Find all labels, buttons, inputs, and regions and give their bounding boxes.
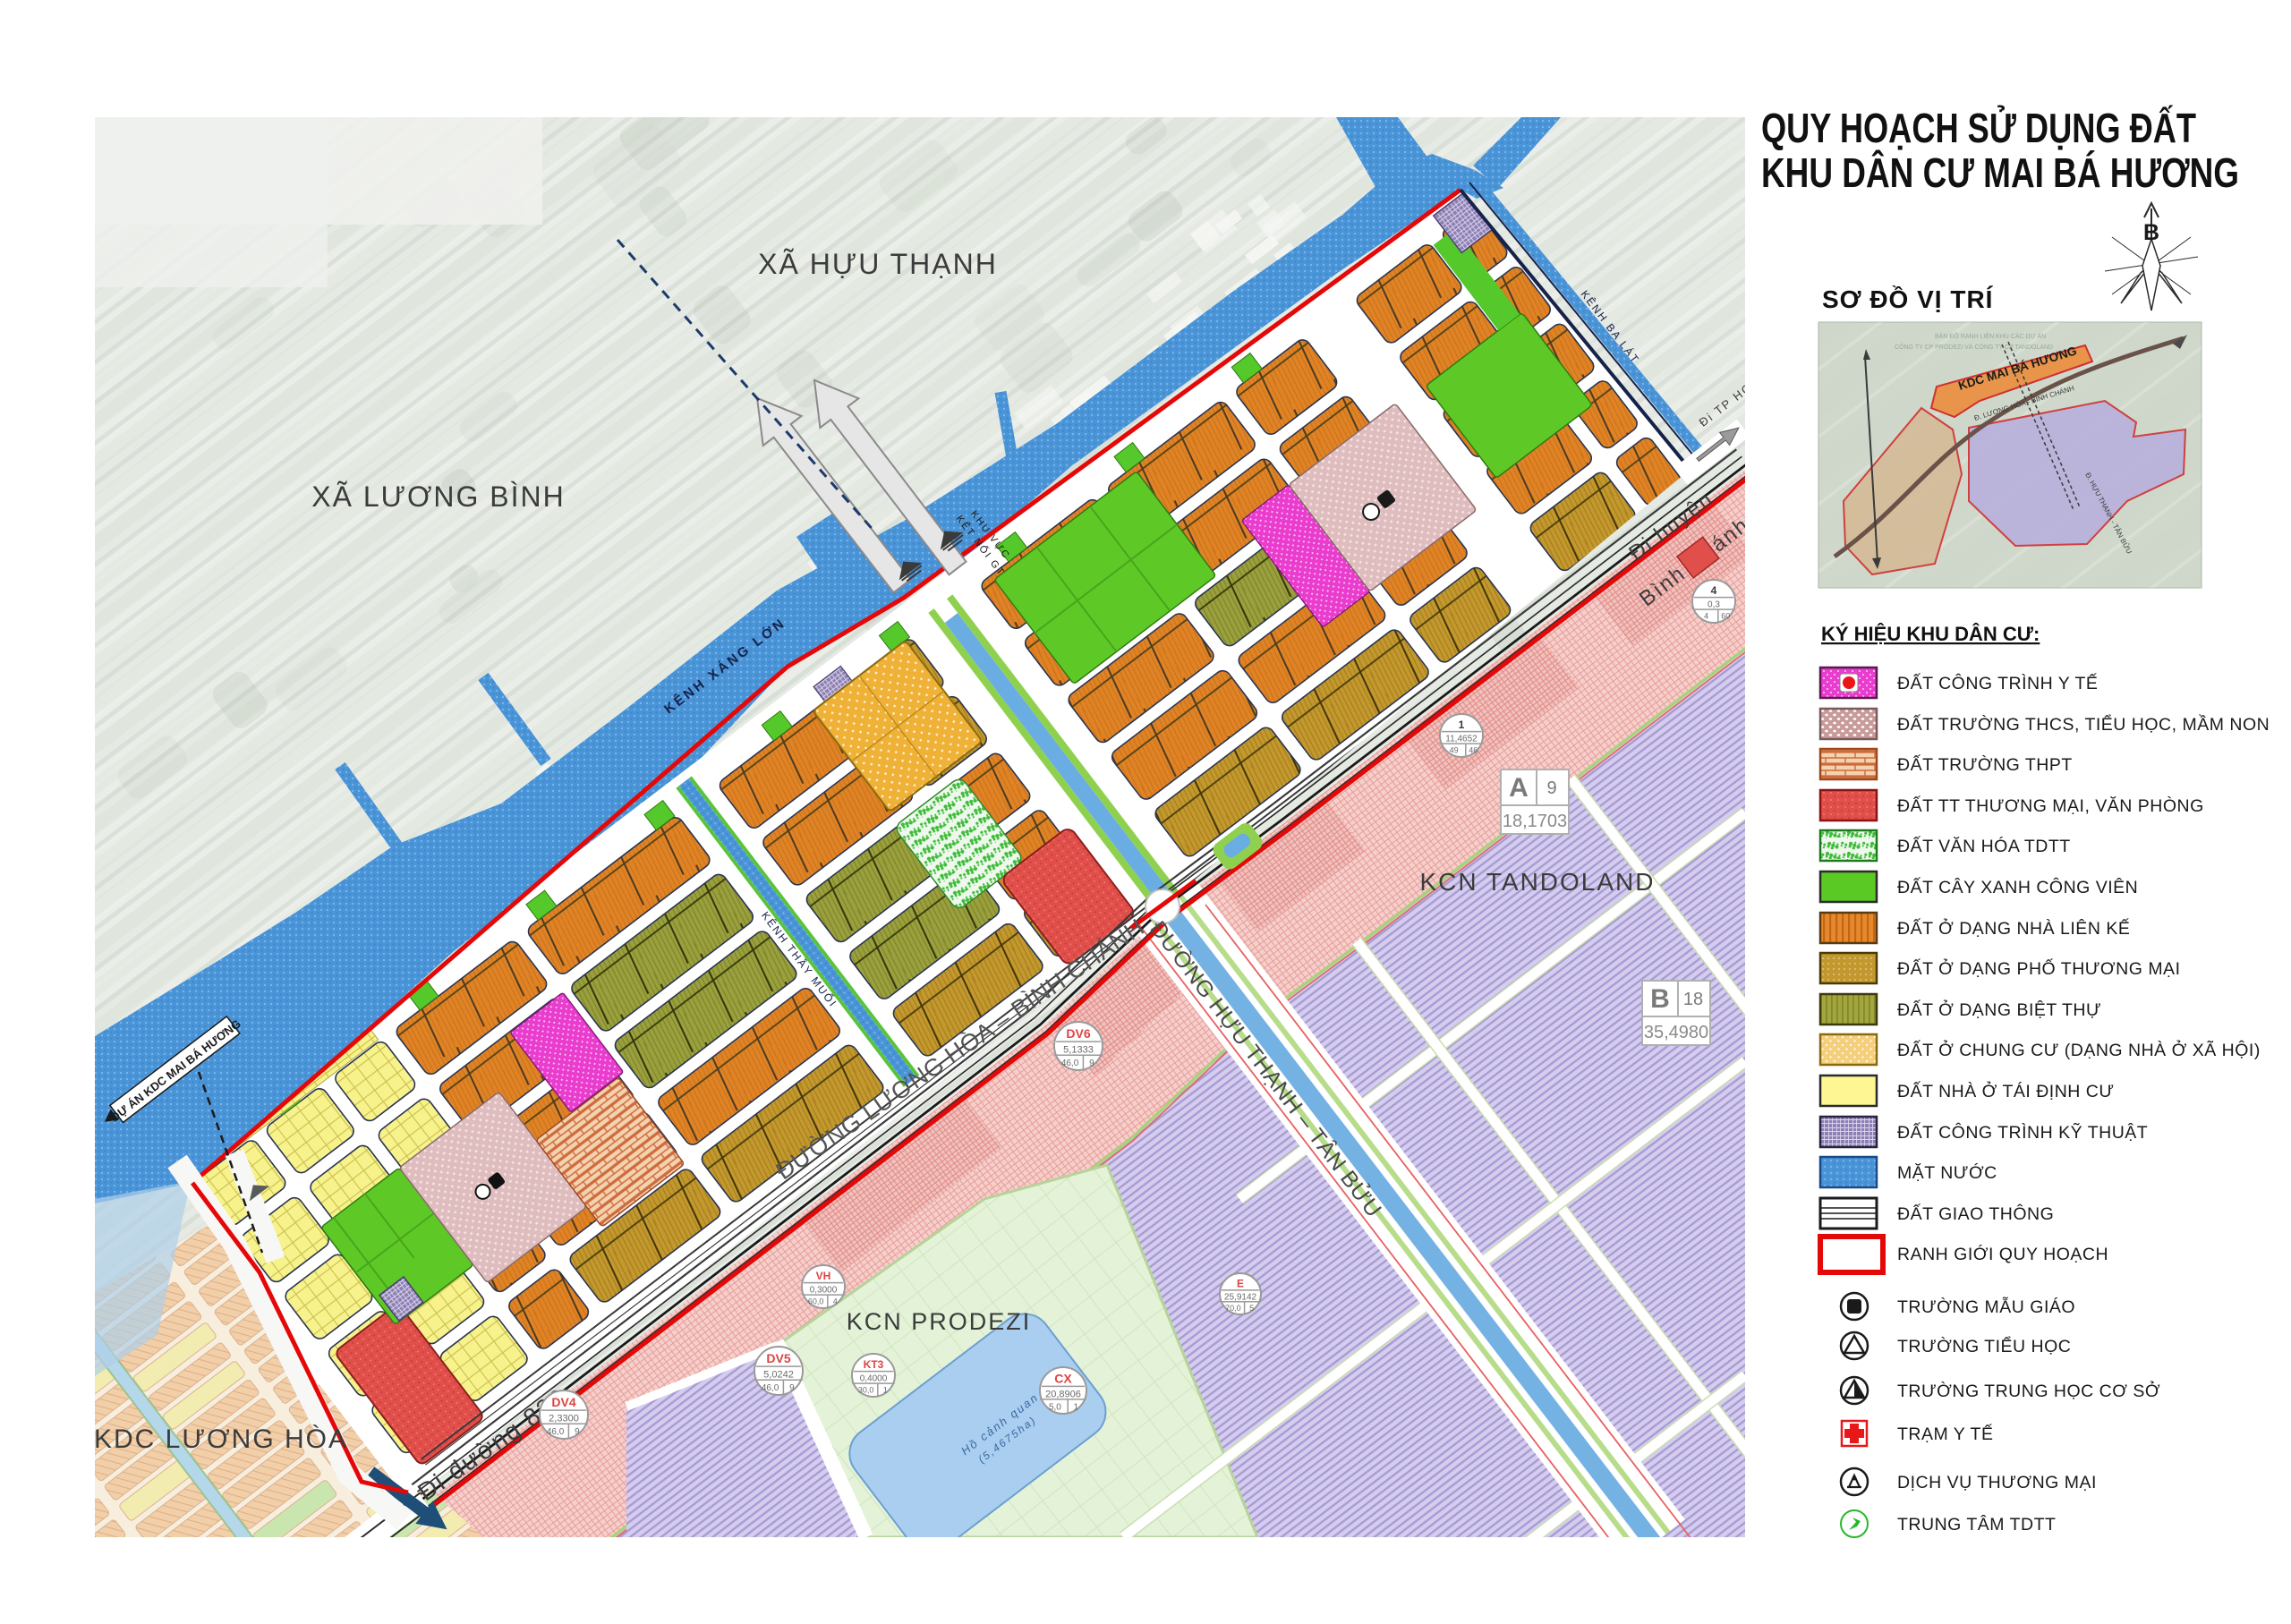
svg-text:5,0: 5,0 xyxy=(1049,1402,1061,1412)
svg-text:ĐẤT Ở DẠNG BIỆT THỰ: ĐẤT Ở DẠNG BIỆT THỰ xyxy=(1897,999,2101,1020)
svg-text:ĐẤT CÔNG TRÌNH KỸ THUẬT: ĐẤT CÔNG TRÌNH KỸ THUẬT xyxy=(1897,1121,2148,1143)
svg-text:ĐẤT CÂY XANH CÔNG VIÊN: ĐẤT CÂY XANH CÔNG VIÊN xyxy=(1897,877,2138,897)
svg-text:XÃ LƯƠNG BÌNH: XÃ LƯƠNG BÌNH xyxy=(311,480,565,513)
svg-text:49: 49 xyxy=(1450,746,1459,755)
svg-text:25,9142: 25,9142 xyxy=(1224,1292,1257,1302)
svg-text:DV6: DV6 xyxy=(1066,1026,1090,1041)
svg-text:ĐẤT Ở DẠNG PHỐ THƯƠNG MẠI: ĐẤT Ở DẠNG PHỐ THƯƠNG MẠI xyxy=(1897,957,2180,979)
svg-text:1: 1 xyxy=(1074,1402,1079,1412)
svg-text:CX: CX xyxy=(1054,1371,1072,1385)
svg-text:5: 5 xyxy=(1249,1304,1254,1313)
svg-text:60: 60 xyxy=(1721,612,1730,621)
svg-text:ĐẤT CÔNG TRÌNH Y TẾ: ĐẤT CÔNG TRÌNH Y TẾ xyxy=(1897,673,2098,693)
svg-text:9: 9 xyxy=(1546,778,1556,798)
svg-text:18: 18 xyxy=(1683,990,1703,1009)
svg-text:SƠ ĐỒ VỊ TRÍ: SƠ ĐỒ VỊ TRÍ xyxy=(1822,285,1994,313)
svg-text:ĐẤT GIAO THÔNG: ĐẤT GIAO THÔNG xyxy=(1897,1203,2054,1224)
svg-text:CÔNG TY CP PRODEZI VÀ CÔNG TY: CÔNG TY CP PRODEZI VÀ CÔNG TY CP TANDOLA… xyxy=(1895,343,2053,351)
svg-text:XÃ HỰU THẠNH: XÃ HỰU THẠNH xyxy=(758,248,998,280)
svg-text:KT3: KT3 xyxy=(864,1358,884,1371)
svg-text:46,0: 46,0 xyxy=(762,1383,779,1393)
svg-text:4: 4 xyxy=(833,1297,838,1306)
svg-text:KHU DÂN CƯ MAI BÁ HƯƠNG: KHU DÂN CƯ MAI BÁ HƯƠNG xyxy=(1761,149,2239,196)
svg-text:DV5: DV5 xyxy=(766,1351,790,1365)
svg-text:46: 46 xyxy=(1469,746,1478,755)
svg-text:0,4000: 0,4000 xyxy=(860,1374,888,1384)
svg-text:B: B xyxy=(2143,220,2159,245)
svg-text:TRƯỜNG TIỂU HỌC: TRƯỜNG TIỂU HỌC xyxy=(1897,1336,2071,1356)
svg-text:11,4652: 11,4652 xyxy=(1445,735,1478,744)
svg-text:60,0: 60,0 xyxy=(808,1297,824,1306)
svg-text:46,0: 46,0 xyxy=(1061,1059,1079,1068)
svg-text:5,0242: 5,0242 xyxy=(763,1370,794,1381)
svg-text:ĐẤT NHÀ Ở TÁI ĐỊNH CƯ: ĐẤT NHÀ Ở TÁI ĐỊNH CƯ xyxy=(1897,1080,2115,1101)
svg-text:9: 9 xyxy=(575,1427,580,1437)
svg-text:4: 4 xyxy=(1711,584,1717,597)
svg-text:MẶT NƯỚC: MẶT NƯỚC xyxy=(1897,1162,1997,1183)
svg-text:KDC LƯƠNG HÒA: KDC LƯƠNG HÒA xyxy=(94,1424,348,1454)
svg-text:20,8906: 20,8906 xyxy=(1045,1389,1081,1399)
svg-text:TRUNG TÂM TDTT: TRUNG TÂM TDTT xyxy=(1897,1514,2056,1535)
svg-text:KÝ HIỆU KHU DÂN CƯ:: KÝ HIỆU KHU DÂN CƯ: xyxy=(1821,623,2040,645)
svg-text:9: 9 xyxy=(1089,1059,1094,1068)
svg-text:DỊCH VỤ THƯƠNG MẠI: DỊCH VỤ THƯƠNG MẠI xyxy=(1897,1473,2097,1492)
svg-text:ĐẤT VĂN HÓA TDTT: ĐẤT VĂN HÓA TDTT xyxy=(1897,836,2071,856)
svg-text:ĐẤT Ở CHUNG CƯ (DẠNG NHÀ Ở XÃ: ĐẤT Ở CHUNG CƯ (DẠNG NHÀ Ở XÃ HỘI) xyxy=(1897,1039,2261,1060)
svg-text:A: A xyxy=(1509,773,1529,803)
svg-text:E: E xyxy=(1237,1277,1244,1289)
svg-text:ĐẤT TT THƯƠNG MẠI, VĂN PHÒNG: ĐẤT TT THƯƠNG MẠI, VĂN PHÒNG xyxy=(1897,795,2204,816)
svg-text:ĐẤT TRƯỜNG THPT: ĐẤT TRƯỜNG THPT xyxy=(1897,754,2073,775)
svg-text:1: 1 xyxy=(883,1386,888,1395)
svg-text:18,1703: 18,1703 xyxy=(1503,812,1567,831)
svg-text:RANH GIỚI QUY HOẠCH: RANH GIỚI QUY HOẠCH xyxy=(1897,1244,2108,1264)
svg-text:TRẠM Y TẾ: TRẠM Y TẾ xyxy=(1897,1424,1993,1444)
svg-text:4: 4 xyxy=(1704,612,1708,621)
svg-text:TRƯỜNG MẪU GIÁO: TRƯỜNG MẪU GIÁO xyxy=(1897,1297,2075,1317)
svg-text:0,3000: 0,3000 xyxy=(810,1286,838,1296)
svg-text:KCN TANDOLAND: KCN TANDOLAND xyxy=(1419,868,1655,896)
svg-text:KCN PRODEZI: KCN PRODEZI xyxy=(847,1308,1032,1335)
svg-text:B: B xyxy=(1650,984,1670,1014)
svg-text:30,0: 30,0 xyxy=(858,1386,874,1395)
svg-text:1: 1 xyxy=(1459,718,1465,731)
svg-text:9: 9 xyxy=(789,1383,795,1393)
svg-text:46,0: 46,0 xyxy=(547,1427,565,1437)
svg-text:35,4980: 35,4980 xyxy=(1644,1023,1708,1042)
svg-text:ĐẤT TRƯỜNG THCS, TIỂU HỌC, MẦM: ĐẤT TRƯỜNG THCS, TIỂU HỌC, MẦM NON xyxy=(1897,714,2270,735)
svg-text:ĐẤT Ở DẠNG NHÀ LIÊN KẾ: ĐẤT Ở DẠNG NHÀ LIÊN KẾ xyxy=(1897,917,2130,939)
svg-text:DV4: DV4 xyxy=(551,1395,575,1409)
svg-text:70,0: 70,0 xyxy=(1225,1304,1241,1313)
svg-text:QUY HOẠCH SỬ DỤNG ĐẤT: QUY HOẠCH SỬ DỤNG ĐẤT xyxy=(1761,105,2196,151)
svg-text:2,3300: 2,3300 xyxy=(549,1414,579,1424)
svg-text:0,3: 0,3 xyxy=(1708,600,1720,610)
svg-text:TRƯỜNG TRUNG HỌC CƠ SỞ: TRƯỜNG TRUNG HỌC CƠ SỞ xyxy=(1897,1380,2160,1401)
svg-text:5,1333: 5,1333 xyxy=(1063,1045,1094,1056)
svg-text:VH: VH xyxy=(816,1270,831,1282)
